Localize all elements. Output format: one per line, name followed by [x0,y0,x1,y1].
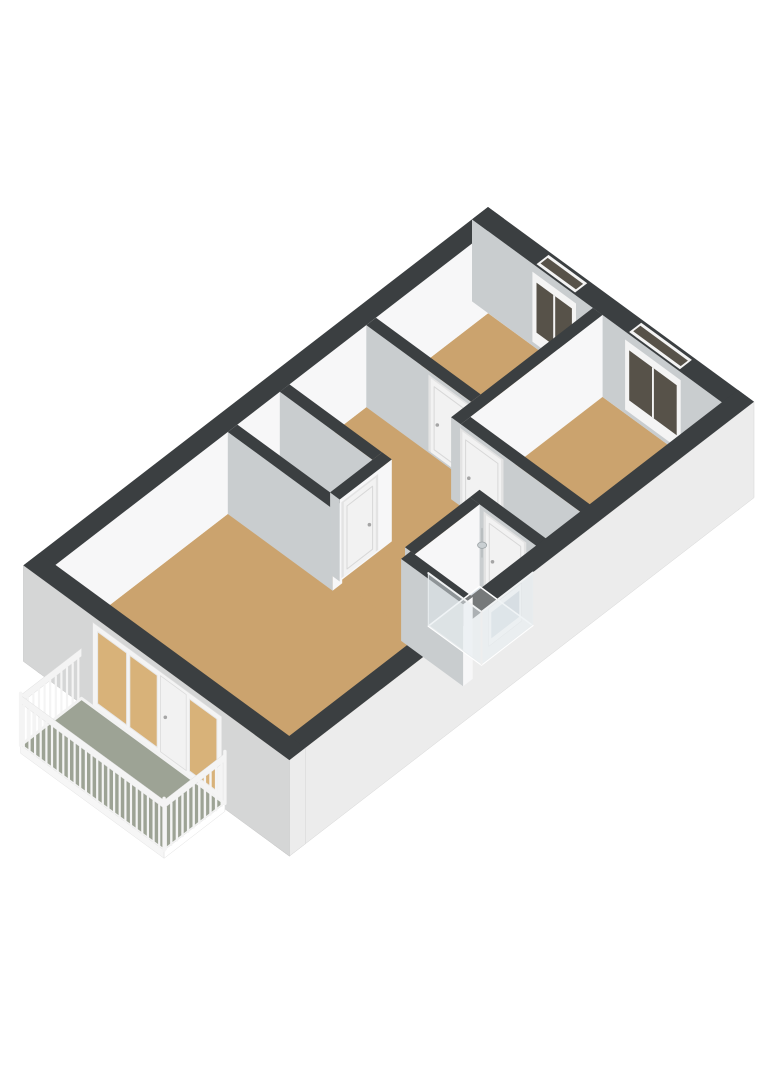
wc-door-handle [368,523,372,527]
wall-wc-se-face-sw [330,492,340,581]
bedroom-2-window-mullion [652,367,654,418]
bedroom-2-door-handle [467,476,471,480]
balcony-door-handle [164,716,168,720]
shower-head-icon [478,542,487,548]
wall-outer-sw-face-se [289,748,305,856]
bedroom-1-door-handle [436,423,440,427]
floorplan-3d-view: 3D axonometric floor plan of an apartmen… [0,0,768,1086]
bathroom-door-handle [491,560,495,564]
floorplan-3d-svg [0,0,768,1086]
wall-bed1-bed2-face-sw [451,417,461,506]
